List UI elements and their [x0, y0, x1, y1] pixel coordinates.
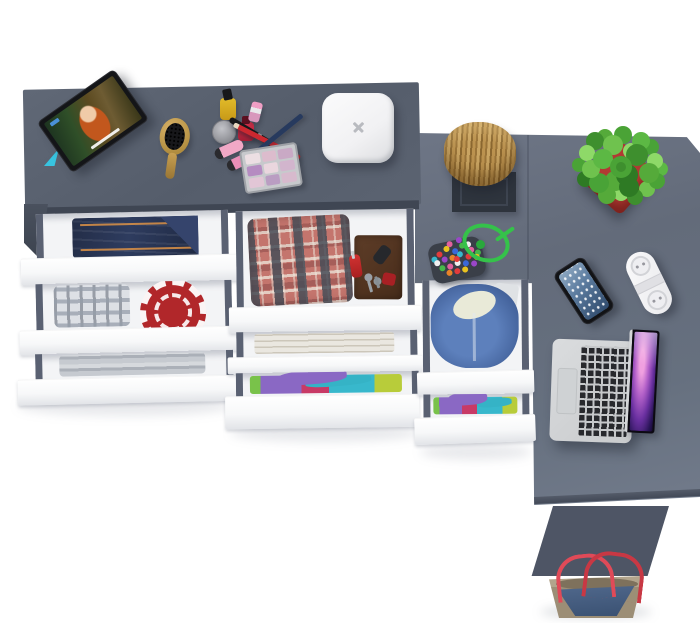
lipstick: [248, 101, 264, 123]
beads: [453, 255, 460, 262]
eyeshadow-pan: [245, 153, 261, 165]
hairbrush: [148, 115, 200, 183]
drawer-interior-shorts-organizer: [235, 209, 414, 309]
drawer-front: [417, 369, 535, 395]
eyeshadow-pan: [261, 150, 277, 162]
drawer-interior-shirt-doily: [35, 280, 232, 332]
laptop-base: [549, 339, 635, 444]
drawer-front: [414, 414, 536, 445]
laptop-wallpaper: [629, 332, 657, 432]
drawer-column-left: [18, 205, 248, 410]
eyeshadow-pan: [247, 165, 263, 177]
drawer-column-middle: [227, 205, 424, 434]
drawer-column-right: [418, 280, 533, 449]
plant-leaves: [616, 162, 626, 172]
eyeshadow-pan: [278, 147, 294, 159]
colorful-clothes: [250, 374, 402, 394]
plant-foliage: [578, 126, 664, 208]
tote-bag-handle: [581, 549, 646, 604]
drawer-interior-hoodie: [422, 280, 529, 373]
tablet-group: [34, 82, 160, 178]
eyeshadow-pan: [281, 171, 297, 183]
drawer-interior-white-towels: [236, 330, 417, 359]
red-keychain: [381, 272, 396, 286]
folded-jeans: [72, 216, 199, 259]
wood-log-decor: [444, 122, 516, 186]
drawer-front: [225, 394, 419, 430]
eyeshadow-pan: [265, 174, 281, 186]
white-towels: [254, 332, 394, 354]
colorful-clothes: [433, 397, 517, 415]
blue-hoodie: [430, 284, 519, 369]
scene: [0, 0, 700, 623]
eyeshadow-pan: [263, 162, 279, 174]
red-knit-doily: [139, 280, 206, 332]
desk-seam-line: [527, 135, 529, 282]
laptop-screen: [624, 329, 659, 433]
laptop-keyboard: [578, 346, 629, 438]
power-socket: [627, 253, 654, 280]
power-socket: [644, 287, 671, 314]
eyeshadow-pan: [248, 176, 264, 188]
drawer-front: [229, 305, 421, 334]
tote-bag: [540, 548, 660, 622]
eyeshadow-pan: [279, 159, 295, 171]
wireless-charger: [322, 93, 394, 163]
tablet-screen: [44, 76, 143, 167]
movie-character: [66, 93, 120, 148]
plaid-shorts: [247, 214, 353, 307]
drawer-front: [18, 374, 249, 405]
eyeshadow-palette: [239, 142, 303, 195]
hairbrush-handle: [165, 152, 178, 179]
bead-cord-knot: [476, 240, 485, 249]
laptop-trackpad: [556, 368, 578, 415]
plaid-shirt: [53, 284, 130, 328]
gray-towels: [59, 352, 205, 376]
movie-ui-chip: [50, 118, 60, 127]
nail-polish-yellow: [220, 98, 236, 120]
drawer-interior-jeans: [36, 210, 229, 260]
